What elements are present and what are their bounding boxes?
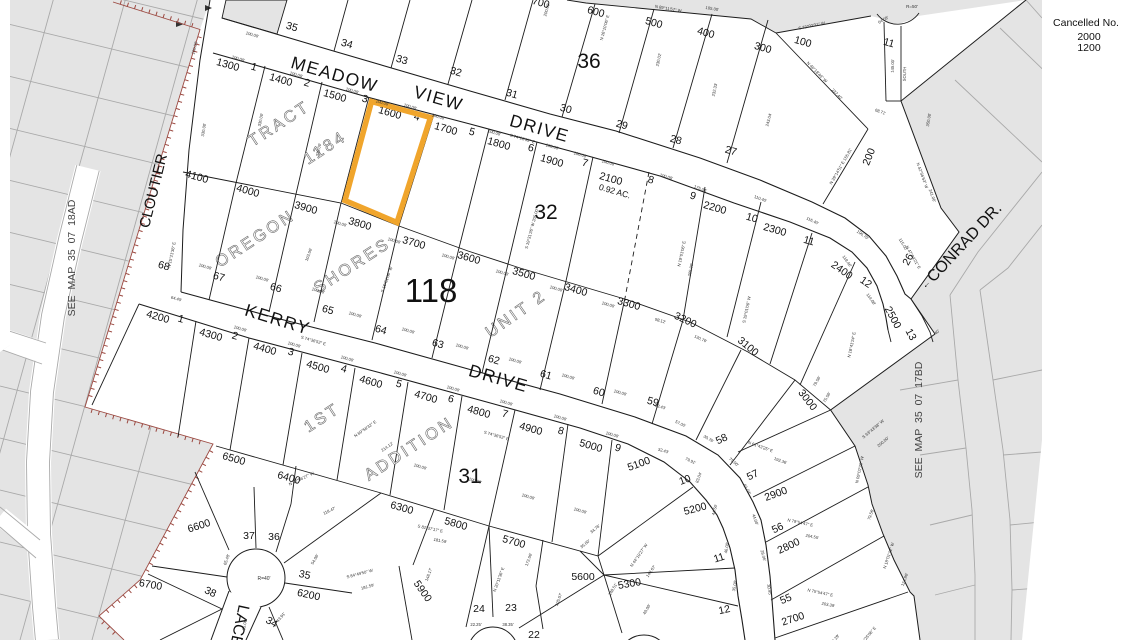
svg-text:SOUTH: SOUTH [902,67,908,82]
svg-text:R=40': R=40' [257,576,270,582]
svg-text:36: 36 [268,531,280,543]
svg-text:38.35': 38.35' [502,622,513,627]
svg-text:37: 37 [243,530,255,542]
svg-text:1200: 1200 [1077,42,1101,54]
svg-text:24: 24 [473,603,485,615]
svg-text:145.00': 145.00' [890,59,895,73]
svg-text:22.25': 22.25' [470,622,481,627]
svg-text:SEE MAP 35 07 18AD: SEE MAP 35 07 18AD [66,199,78,316]
svg-text:5600: 5600 [571,571,595,583]
svg-text:23: 23 [505,602,517,614]
svg-text:SEE MAP 35 07 17BD: SEE MAP 35 07 17BD [913,361,925,478]
svg-text:Cancelled No.: Cancelled No. [1053,17,1119,29]
svg-text:R=50': R=50' [906,4,918,9]
svg-text:36: 36 [577,50,600,73]
svg-text:22: 22 [528,629,540,640]
svg-text:118: 118 [405,272,458,309]
